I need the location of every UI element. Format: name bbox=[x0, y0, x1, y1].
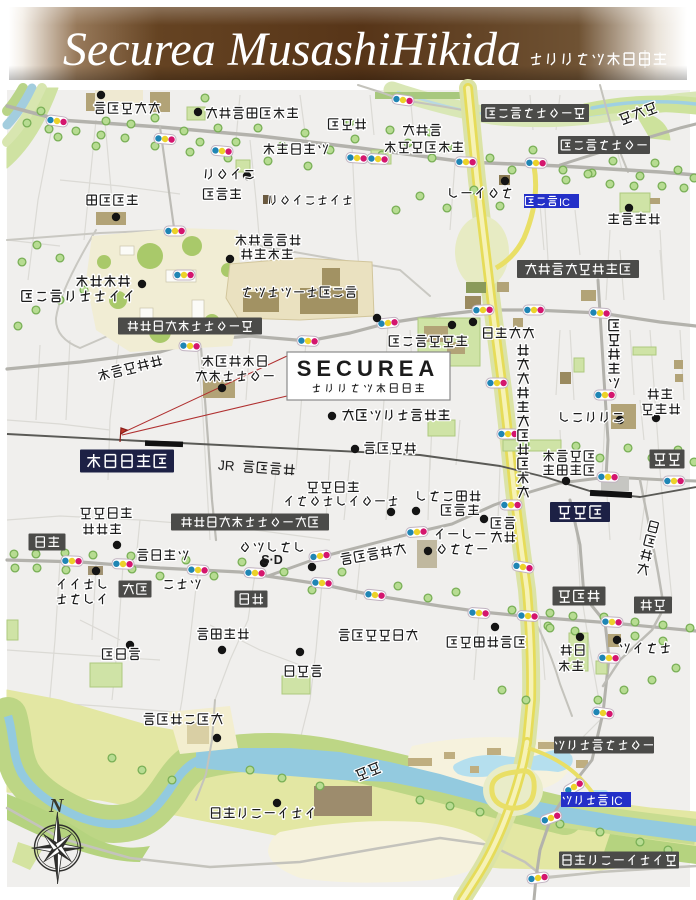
svg-text:JR: JR bbox=[218, 458, 236, 474]
svg-text:S·D: S·D bbox=[261, 553, 283, 567]
svg-text:IC: IC bbox=[559, 197, 570, 209]
svg-text:Securea MusashiHikida: Securea MusashiHikida bbox=[63, 23, 521, 76]
svg-text:SECUREA: SECUREA bbox=[297, 356, 440, 381]
svg-text:N: N bbox=[48, 795, 65, 817]
svg-text:IC: IC bbox=[611, 796, 623, 808]
